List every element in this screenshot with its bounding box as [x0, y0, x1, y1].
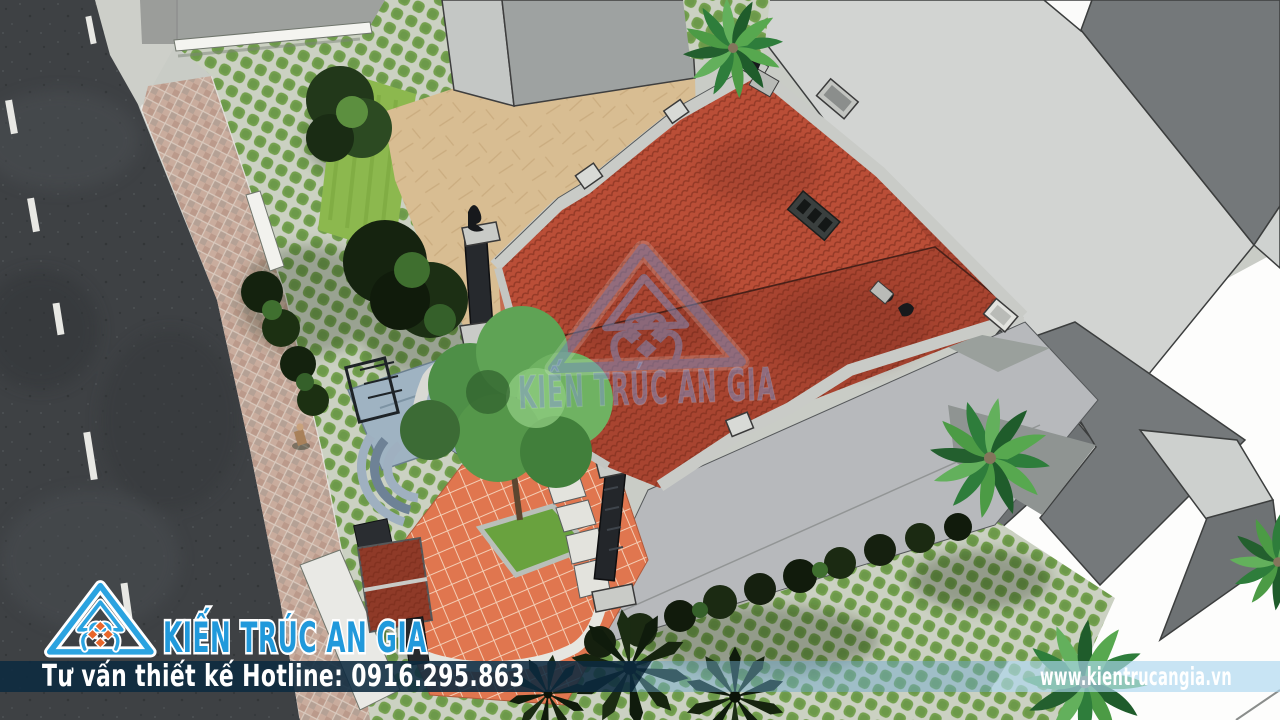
aerial-render-scene: KIẾN TRÚC AN GIA Tư vấn thiết kế Hotline… — [0, 0, 1280, 720]
middle-band — [632, 661, 1009, 692]
company-name-text: KIẾN TRÚC AN GIA — [163, 607, 427, 662]
neighbor-ground-shadow — [140, 0, 178, 44]
hotline-text: Tư vấn thiết kế Hotline: 0916.295.863 — [42, 659, 525, 694]
website-text: www.kientrucangia.vn — [1040, 662, 1232, 691]
bottom-bar: Tư vấn thiết kế Hotline: 0916.295.863 ww… — [0, 659, 1280, 694]
architectural-render-image: KIẾN TRÚC AN GIA Tư vấn thiết kế Hotline… — [0, 0, 1280, 720]
